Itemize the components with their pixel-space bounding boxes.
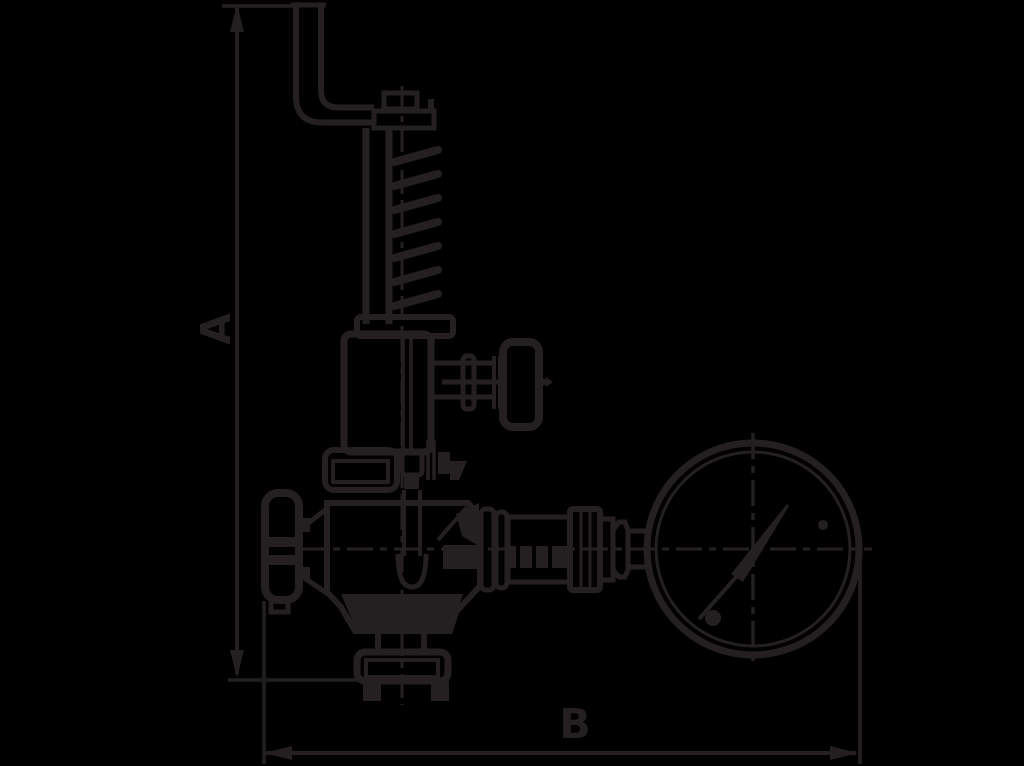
dim-a-label: A bbox=[192, 313, 240, 345]
t-knob bbox=[503, 342, 539, 427]
handwheel-foot bbox=[271, 601, 288, 612]
thread-slit-3 bbox=[548, 546, 552, 568]
dim-a-arrow-down bbox=[230, 650, 244, 678]
bonnet bbox=[344, 334, 431, 452]
valve-body bbox=[303, 490, 480, 631]
technical-drawing-canvas: A B bbox=[0, 0, 1024, 766]
stem-pad-base bbox=[404, 475, 419, 489]
body-lower-fill bbox=[341, 594, 463, 629]
handwheel bbox=[264, 493, 310, 612]
handwheel-stub-bottom bbox=[300, 567, 310, 580]
outlet-throat bbox=[443, 545, 479, 569]
flange-stub-right bbox=[431, 681, 449, 701]
handwheel-stub-top bbox=[300, 518, 310, 532]
valve-technical-drawing: A B bbox=[0, 0, 1024, 766]
thread-slit-1 bbox=[516, 546, 520, 568]
bracket-wedge bbox=[450, 461, 467, 480]
knob-tip-point bbox=[546, 377, 553, 387]
handwheel-hub-bar-top bbox=[264, 537, 300, 547]
thread-slit-2 bbox=[532, 546, 536, 568]
conn-plate-1 bbox=[481, 509, 494, 590]
lever-inner-wall bbox=[321, 6, 374, 108]
dim-b-label: B bbox=[559, 700, 590, 748]
gauge-dial-screw-left bbox=[705, 610, 721, 626]
gauge-needle-blade bbox=[731, 504, 789, 582]
mid-flange-inner bbox=[333, 461, 388, 482]
lifting-lever bbox=[291, 5, 374, 123]
gauge-dial-screw-right bbox=[818, 520, 828, 530]
flange-stub-left bbox=[363, 681, 381, 701]
bracket-block bbox=[438, 452, 450, 474]
dim-b-arrow-right bbox=[830, 746, 858, 760]
dim-a-arrow-up bbox=[230, 4, 244, 32]
seat-wedge bbox=[456, 503, 479, 546]
gauge-connection bbox=[481, 509, 649, 590]
cap-plate bbox=[374, 111, 434, 128]
handwheel-hub-bar-bottom bbox=[264, 555, 300, 565]
mid-flange bbox=[325, 440, 467, 490]
side-branch bbox=[431, 342, 553, 427]
dim-b-arrow-left bbox=[264, 746, 292, 760]
